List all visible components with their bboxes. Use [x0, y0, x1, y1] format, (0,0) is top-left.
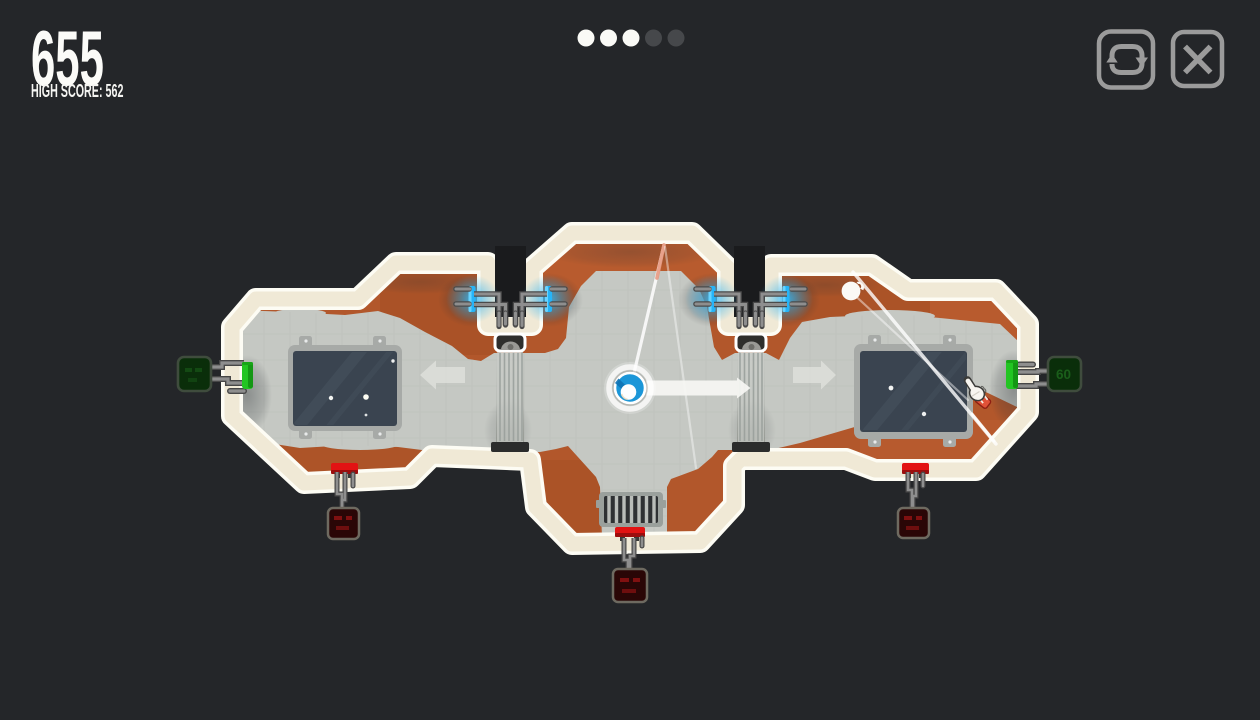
svg-text:60: 60: [1056, 367, 1071, 382]
